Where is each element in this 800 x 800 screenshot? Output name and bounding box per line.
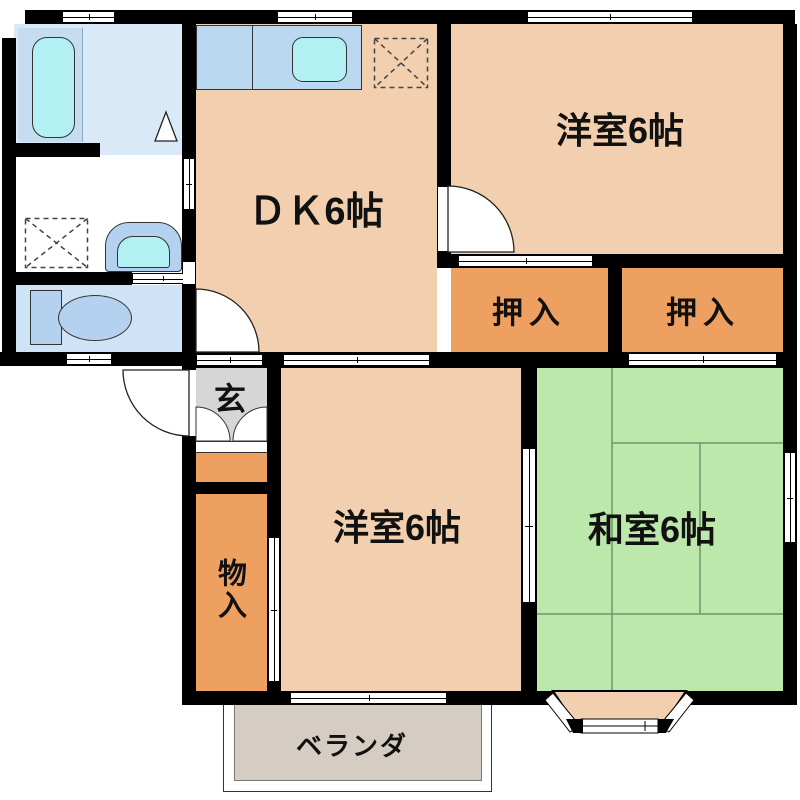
kitchen-sink — [292, 37, 347, 82]
slider-washroom-door — [183, 158, 195, 210]
label-storage: 物入 — [215, 558, 244, 622]
kitchen-counter-divider — [252, 25, 253, 90]
window-toilet — [66, 353, 112, 365]
label-dk: ＤＫ6帖 — [248, 193, 383, 231]
bathtub — [32, 37, 75, 138]
outer-wall-bottom-right — [683, 691, 797, 705]
genkan-step — [196, 441, 267, 453]
opening-washroom-corner — [183, 262, 195, 284]
wall-bath-dk — [182, 24, 196, 155]
label-western-bottom: 洋室6帖 — [333, 510, 461, 546]
floor-plan: ＤＫ6帖 洋室6帖 洋室6帖 和室6帖 押入 押入 玄 物入 ベランダ — [0, 0, 800, 800]
wall-bath-washroom — [14, 143, 100, 157]
slider-closet-right — [628, 353, 777, 366]
label-closet-left: 押入 — [492, 298, 566, 329]
window-bathroom — [62, 11, 115, 23]
window-western-bottom-veranda — [290, 692, 447, 704]
wall-shoecab-storage — [196, 482, 267, 494]
slider-closet-left — [458, 255, 593, 267]
window-western-top — [527, 11, 693, 23]
wall-dk-western-top-upper — [437, 24, 451, 188]
opening-front-door — [182, 370, 196, 436]
slider-dk-western-bottom — [283, 354, 430, 366]
outer-wall-left — [2, 38, 16, 366]
wall-washroom-toilet — [14, 272, 132, 285]
shoe-cabinet — [196, 453, 267, 482]
wall-closet-divider — [608, 268, 622, 352]
window-dk — [277, 11, 353, 23]
label-veranda: ベランダ — [296, 733, 408, 759]
label-japanese: 和室6帖 — [588, 512, 716, 548]
toilet-bowl — [58, 295, 132, 341]
window-japanese-right — [784, 452, 796, 543]
front-door-swing-arc — [123, 370, 189, 436]
label-entrance: 玄 — [214, 383, 246, 415]
label-western-top: 洋室6帖 — [556, 113, 684, 149]
slider-storage-door — [268, 537, 280, 682]
bay-window — [545, 691, 694, 733]
slider-western-japanese — [522, 448, 536, 603]
washbasin-bowl — [117, 236, 170, 268]
opening-genkan-dk — [196, 354, 263, 366]
door-leaf-western-top — [437, 186, 449, 252]
label-closet-right: 押入 — [666, 298, 740, 329]
